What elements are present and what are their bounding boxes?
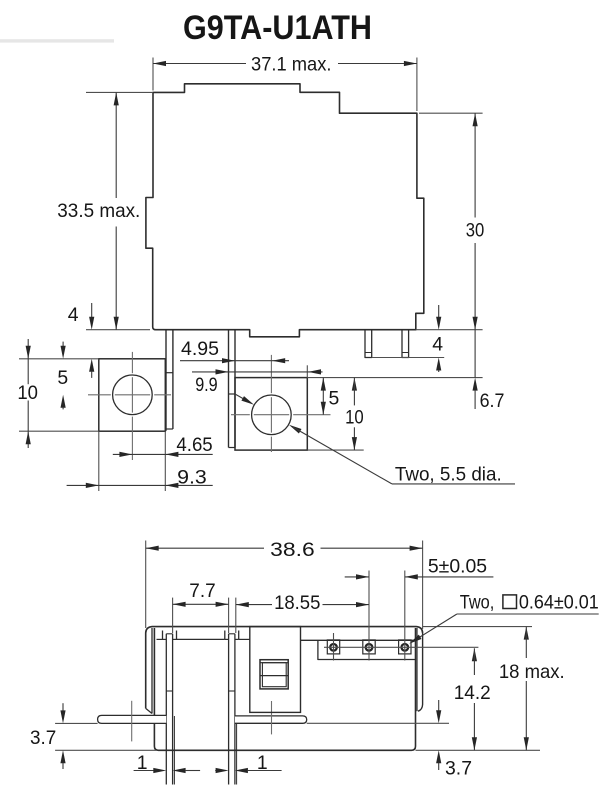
svg-text:18.55: 18.55 [274,592,320,614]
svg-text:3.7: 3.7 [30,727,56,749]
svg-text:30: 30 [466,219,485,241]
svg-text:4.95: 4.95 [181,338,219,360]
svg-text:5: 5 [329,387,340,409]
svg-text:10: 10 [17,382,38,404]
svg-text:33.5 max.: 33.5 max. [57,200,140,222]
svg-text:4: 4 [68,304,79,326]
svg-text:5: 5 [57,367,68,389]
svg-text:7.7: 7.7 [189,580,215,602]
svg-text:1: 1 [137,752,148,774]
svg-text:Two,: Two, [460,591,495,613]
svg-text:9.9: 9.9 [195,374,218,396]
svg-text:0.64±0.01: 0.64±0.01 [519,591,599,613]
svg-text:1: 1 [257,752,268,774]
svg-text:4.65: 4.65 [176,434,212,456]
svg-text:9.3: 9.3 [177,467,207,489]
svg-text:5±0.05: 5±0.05 [428,555,487,577]
svg-text:18 max.: 18 max. [499,661,565,683]
svg-text:4: 4 [432,334,443,356]
svg-text:6.7: 6.7 [480,390,505,412]
svg-text:37.1 max.: 37.1 max. [251,53,332,75]
svg-text:38.6: 38.6 [270,539,315,561]
svg-text:14.2: 14.2 [454,682,491,704]
svg-text:Two, 5.5 dia.: Two, 5.5 dia. [395,464,502,486]
svg-text:3.7: 3.7 [445,758,472,780]
svg-text:10: 10 [345,407,364,429]
svg-text:G9TA-U1ATH: G9TA-U1ATH [183,9,372,47]
